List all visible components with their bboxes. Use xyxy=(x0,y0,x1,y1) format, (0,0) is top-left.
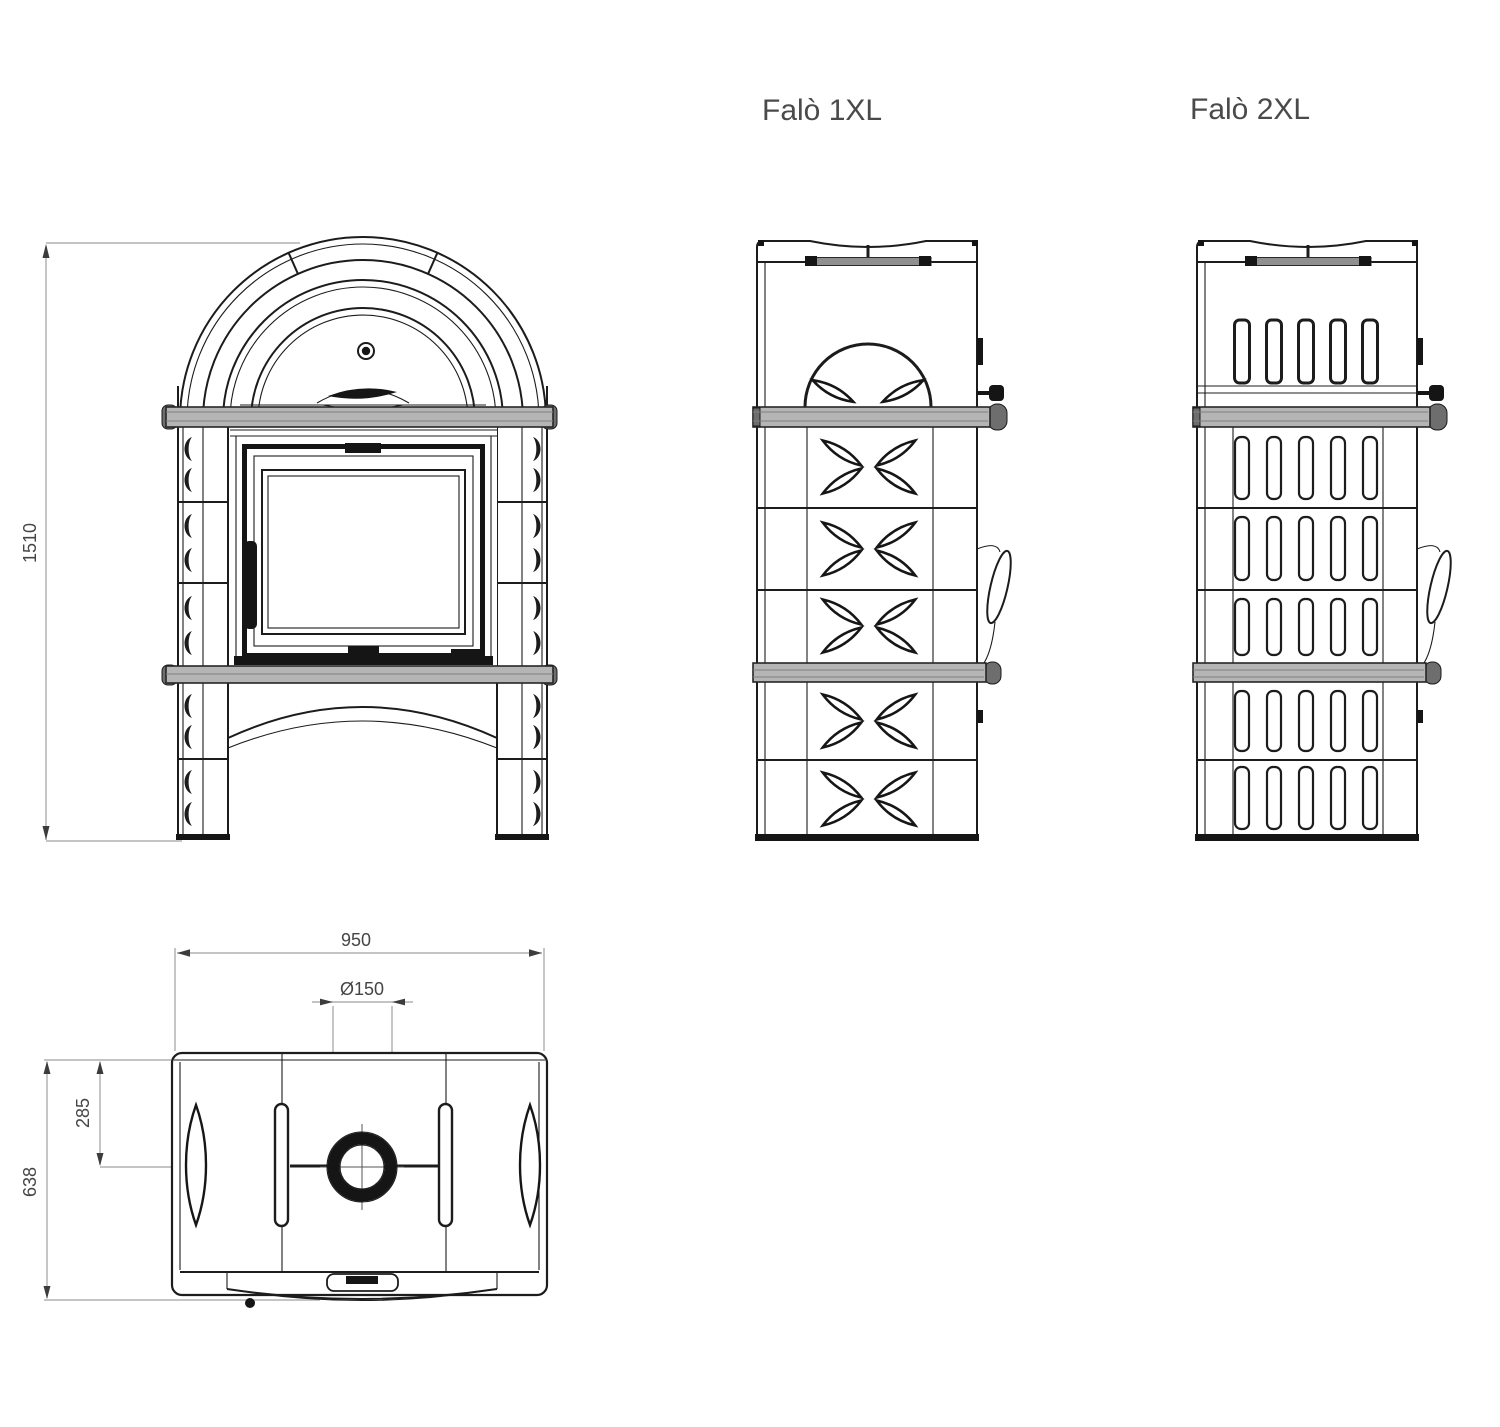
front-upper-shelf xyxy=(162,405,557,429)
front-lower-shelf xyxy=(162,665,557,685)
damper-knob xyxy=(1429,385,1444,401)
side-view-2xl xyxy=(1193,240,1456,841)
damper-knob xyxy=(989,385,1004,401)
stove-technical-drawing: Falò 1XL Falò 2XL 1510 xyxy=(0,0,1500,1427)
side-tiles-2xl xyxy=(1235,437,1377,829)
side-arch xyxy=(805,344,931,407)
plan-view xyxy=(172,1053,547,1308)
front-left-column xyxy=(178,386,228,836)
dimension-offset-label: 285 xyxy=(73,1098,93,1128)
front-right-column xyxy=(497,386,547,836)
front-arch-oven xyxy=(180,237,546,420)
dimension-depth-label: 638 xyxy=(20,1167,40,1197)
side-door-handle-1xl xyxy=(977,546,1016,663)
model-label-1xl: Falò 1XL xyxy=(762,94,882,127)
model-label-2xl: Falò 2XL xyxy=(1190,93,1310,126)
upper-grille-2xl xyxy=(1235,320,1378,383)
side-view-1xl xyxy=(753,240,1016,841)
page: Falò 1XL Falò 2XL 1510 xyxy=(0,0,1500,1427)
front-apron-arc xyxy=(228,707,497,738)
front-view xyxy=(162,237,557,840)
side-tiles-1xl xyxy=(820,437,917,829)
front-firebox-door xyxy=(230,427,497,667)
dimension-flue-label: Ø150 xyxy=(340,979,384,999)
dimension-height-label: 1510 xyxy=(20,523,40,563)
top-vent-bar xyxy=(807,258,931,266)
top-vent-bar xyxy=(1247,258,1371,266)
dimension-width-label: 950 xyxy=(341,930,371,950)
side-door-handle-2xl xyxy=(1417,546,1456,663)
door-handle xyxy=(244,541,257,629)
